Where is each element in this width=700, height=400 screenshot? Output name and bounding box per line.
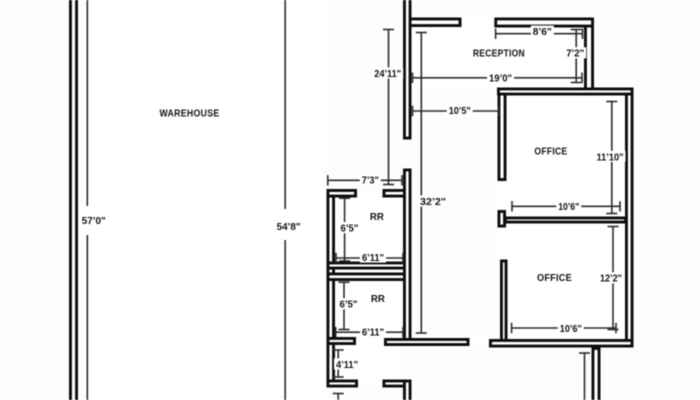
svg-text:54’8": 54’8" bbox=[277, 221, 301, 233]
svg-text:10’5": 10’5" bbox=[449, 105, 471, 117]
svg-text:19’0": 19’0" bbox=[489, 73, 512, 85]
svg-text:32’2": 32’2" bbox=[420, 196, 446, 208]
svg-text:10’6": 10’6" bbox=[558, 201, 579, 213]
svg-text:6’11": 6’11" bbox=[362, 326, 384, 338]
svg-text:RR: RR bbox=[371, 293, 385, 305]
svg-text:10’6": 10’6" bbox=[560, 323, 582, 335]
svg-text:4’11": 4’11" bbox=[336, 359, 358, 371]
svg-text:11’10": 11’10" bbox=[597, 151, 624, 163]
svg-text:6’5": 6’5" bbox=[340, 299, 358, 311]
svg-text:6’5": 6’5" bbox=[341, 223, 359, 235]
svg-text:8’6": 8’6" bbox=[533, 26, 552, 38]
svg-text:WAREHOUSE: WAREHOUSE bbox=[160, 107, 220, 119]
svg-text:6’11": 6’11" bbox=[362, 252, 384, 264]
svg-text:12’2": 12’2" bbox=[600, 273, 622, 285]
svg-text:OFFICE: OFFICE bbox=[534, 145, 567, 157]
svg-text:24’11": 24’11" bbox=[374, 68, 401, 80]
svg-text:7’3": 7’3" bbox=[362, 175, 379, 187]
svg-text:RECEPTION: RECEPTION bbox=[473, 47, 525, 59]
svg-text:OFFICE: OFFICE bbox=[537, 272, 572, 284]
svg-text:7’2": 7’2" bbox=[566, 48, 584, 60]
svg-text:RR: RR bbox=[370, 211, 384, 223]
svg-text:57’0": 57’0" bbox=[82, 215, 106, 227]
